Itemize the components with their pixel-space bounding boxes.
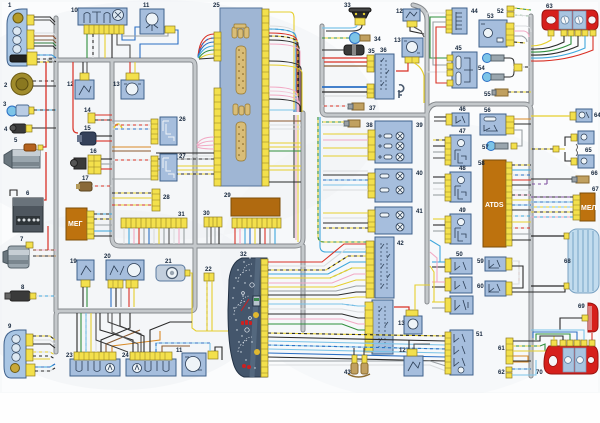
svg-text:68: 68 <box>564 259 571 265</box>
svg-text:54: 54 <box>478 66 485 72</box>
svg-text:42: 42 <box>397 241 404 247</box>
svg-text:66: 66 <box>591 171 598 177</box>
svg-text:15: 15 <box>84 126 91 132</box>
svg-text:30: 30 <box>203 211 210 217</box>
svg-text:22: 22 <box>205 267 212 273</box>
svg-text:31: 31 <box>178 212 185 218</box>
svg-text:60: 60 <box>477 284 484 290</box>
svg-text:69: 69 <box>578 304 585 310</box>
svg-text:57: 57 <box>482 145 489 151</box>
svg-text:13: 13 <box>113 82 120 88</box>
svg-text:55: 55 <box>484 92 491 98</box>
svg-text:40: 40 <box>416 171 423 177</box>
svg-text:43: 43 <box>344 370 351 376</box>
svg-text:67: 67 <box>592 187 599 193</box>
svg-text:53: 53 <box>487 14 494 20</box>
svg-text:12: 12 <box>396 9 403 15</box>
svg-text:52: 52 <box>497 9 504 15</box>
svg-text:58: 58 <box>478 161 485 167</box>
svg-text:38: 38 <box>366 123 373 129</box>
svg-text:34: 34 <box>374 37 381 43</box>
svg-text:26: 26 <box>179 117 186 123</box>
svg-text:45: 45 <box>455 46 462 52</box>
svg-text:24: 24 <box>122 353 129 359</box>
svg-text:20: 20 <box>104 254 111 260</box>
svg-text:62: 62 <box>498 370 505 376</box>
svg-text:27: 27 <box>179 154 186 160</box>
svg-text:11: 11 <box>176 348 183 354</box>
svg-text:29: 29 <box>224 193 231 199</box>
svg-text:70: 70 <box>536 370 543 376</box>
svg-text:64: 64 <box>594 113 600 119</box>
svg-text:13: 13 <box>398 321 405 327</box>
svg-text:46: 46 <box>459 107 466 113</box>
svg-text:51: 51 <box>476 332 483 338</box>
svg-text:16: 16 <box>90 149 97 155</box>
svg-text:13: 13 <box>394 38 401 44</box>
svg-text:ATDS: ATDS <box>485 202 504 209</box>
svg-text:10: 10 <box>71 8 78 14</box>
svg-text:14: 14 <box>84 108 91 114</box>
svg-text:19: 19 <box>70 259 77 265</box>
svg-text:56: 56 <box>484 108 491 114</box>
svg-text:61: 61 <box>498 346 505 352</box>
svg-text:33: 33 <box>344 3 351 9</box>
svg-text:36: 36 <box>380 48 387 54</box>
svg-text:МЕГ: МЕГ <box>68 221 83 228</box>
svg-text:28: 28 <box>163 195 170 201</box>
svg-text:32: 32 <box>240 252 247 258</box>
svg-text:12: 12 <box>399 348 406 354</box>
svg-text:49: 49 <box>459 208 466 214</box>
svg-text:17: 17 <box>82 176 89 182</box>
svg-text:41: 41 <box>416 209 423 215</box>
svg-text:37: 37 <box>369 106 376 112</box>
svg-text:48: 48 <box>459 166 466 172</box>
svg-text:44: 44 <box>471 9 478 15</box>
svg-text:25: 25 <box>213 3 220 9</box>
svg-text:50: 50 <box>456 252 463 258</box>
svg-text:39: 39 <box>416 123 423 129</box>
svg-text:63: 63 <box>546 4 553 10</box>
svg-text:МЕЛ: МЕЛ <box>581 205 597 212</box>
svg-text:23: 23 <box>66 353 73 359</box>
svg-text:65: 65 <box>585 148 592 154</box>
svg-text:21: 21 <box>165 259 172 265</box>
svg-text:11: 11 <box>143 3 150 9</box>
svg-text:35: 35 <box>368 49 375 55</box>
svg-text:59: 59 <box>477 259 484 265</box>
svg-text:47: 47 <box>459 129 466 135</box>
